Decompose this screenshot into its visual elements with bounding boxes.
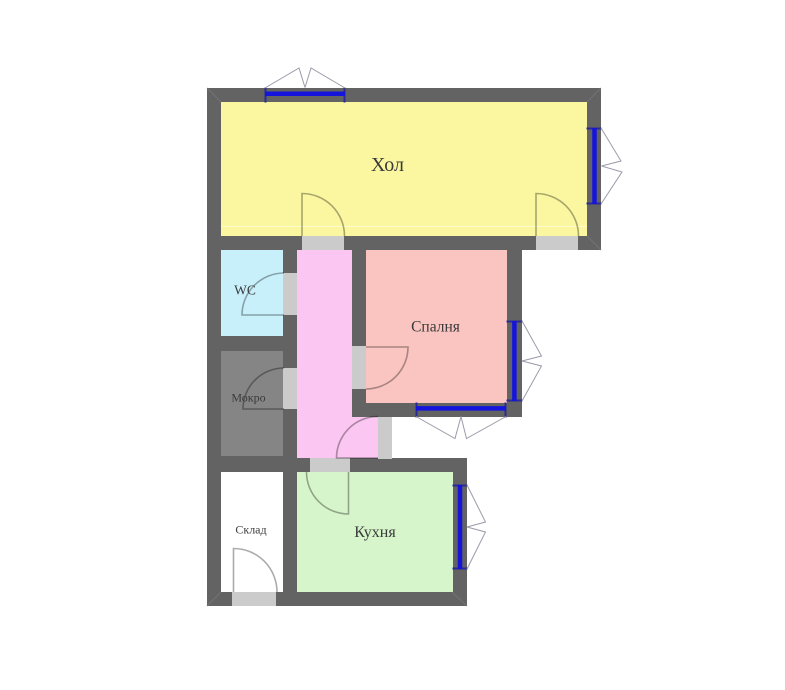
svg-text:Кухня: Кухня [354, 524, 396, 541]
svg-text:Склад: Склад [235, 523, 266, 537]
svg-text:WC: WC [234, 283, 256, 298]
svg-text:Хол: Хол [371, 154, 404, 176]
svg-text:Спалня: Спалня [411, 319, 460, 336]
svg-text:Мокро: Мокро [231, 391, 265, 405]
